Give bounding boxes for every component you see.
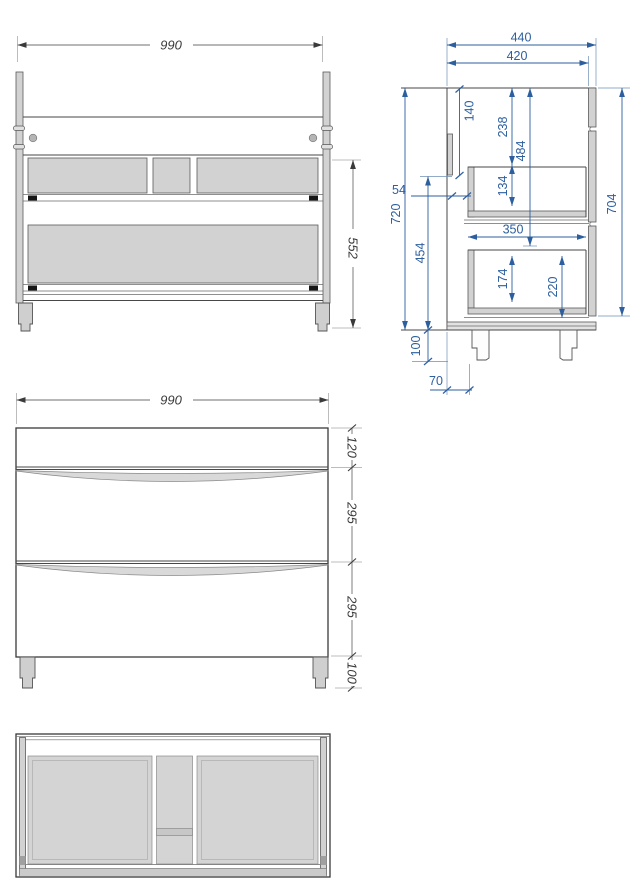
upper-drawer-box-left	[28, 158, 147, 193]
side-front-leg	[472, 330, 489, 360]
plan-front-rail	[20, 869, 327, 877]
dim-label-484: 484	[514, 141, 528, 162]
upper-drawer-box-right	[197, 158, 318, 193]
front-frame-height-dimension: 552	[332, 160, 361, 328]
side-lower-drawer	[464, 250, 589, 318]
dim-label-120: 120	[345, 436, 360, 458]
dim-label-100-leg-side: 100	[409, 336, 423, 357]
dim-label-454: 454	[414, 243, 428, 264]
left-bracket-top	[14, 126, 25, 131]
plan-center-channel	[157, 756, 193, 864]
dim-label-70: 70	[429, 374, 443, 388]
dim-label-720: 720	[389, 204, 403, 225]
upper-runner-right	[309, 196, 318, 201]
plan-left-side-panel	[20, 738, 26, 875]
side-back-leg	[560, 330, 577, 360]
side-section-view: 440 420 140 238 134 484 350 174 220 704	[389, 31, 630, 396]
dim-label-295-upper: 295	[345, 501, 360, 524]
front-structure	[16, 428, 328, 688]
left-side-panel	[16, 72, 23, 303]
lower-runner-left	[28, 286, 37, 291]
dim-label-350: 350	[503, 223, 524, 237]
side-upper-drawer-front	[589, 131, 597, 222]
dim-label-440: 440	[511, 31, 532, 45]
plan-center-divider	[157, 829, 193, 836]
left-bracket-bottom	[14, 145, 25, 150]
front-height-chain-dimension: 120 295 295 100	[331, 425, 362, 692]
front-drawers-view: 990 120 295	[16, 393, 362, 692]
front-frame-width-dimension: 990	[18, 36, 323, 62]
plan-left-drawer-bottom	[28, 756, 152, 864]
lower-drawer-box	[28, 225, 318, 283]
plan-view	[16, 734, 330, 877]
dim-label-140: 140	[463, 101, 477, 122]
plan-right-drawer-bottom	[197, 756, 318, 864]
right-bracket-bottom	[322, 145, 333, 150]
dim-label-704: 704	[605, 194, 619, 215]
dim-label-238: 238	[496, 117, 510, 138]
right-side-panel	[323, 72, 330, 303]
dim-label-174: 174	[496, 269, 510, 290]
front-frame-right-leg	[316, 303, 330, 331]
dim-label-552: 552	[346, 237, 361, 259]
upper-runner-left	[28, 196, 37, 201]
dim-label-295-lower: 295	[345, 595, 360, 618]
dim-label-54: 54	[392, 183, 406, 197]
right-mounting-hole	[309, 134, 317, 142]
front-width-dimension: 990	[17, 393, 329, 425]
front-frame-view: 990	[14, 36, 362, 331]
side-lower-drawer-front	[589, 226, 597, 316]
dim-label-990-frame: 990	[160, 38, 182, 53]
plan-right-side-panel	[321, 738, 327, 875]
dim-label-100-leg-front: 100	[345, 662, 360, 684]
cabinet-body	[16, 428, 328, 657]
right-bracket-top	[322, 126, 333, 131]
dim-label-134: 134	[496, 176, 510, 197]
dim-label-420: 420	[507, 49, 528, 63]
left-mounting-hole	[29, 134, 37, 142]
cabinet-technical-drawing: 990	[0, 0, 639, 888]
dim-label-990-front: 990	[160, 393, 182, 408]
side-back-rail	[448, 134, 453, 175]
plan-right-corner-mark	[321, 856, 327, 865]
front-left-leg	[20, 657, 35, 688]
plan-left-corner-mark	[20, 856, 26, 865]
lower-runner-right	[309, 286, 318, 291]
upper-drawer-box-center	[153, 158, 190, 193]
front-right-leg	[313, 657, 328, 688]
dim-label-220: 220	[546, 277, 560, 298]
technical-drawing-canvas: 990	[0, 0, 639, 888]
front-frame-left-leg	[19, 303, 33, 331]
side-upper-drawer	[464, 167, 589, 224]
front-frame-structure	[14, 72, 333, 331]
side-top-front-edge	[589, 88, 597, 127]
